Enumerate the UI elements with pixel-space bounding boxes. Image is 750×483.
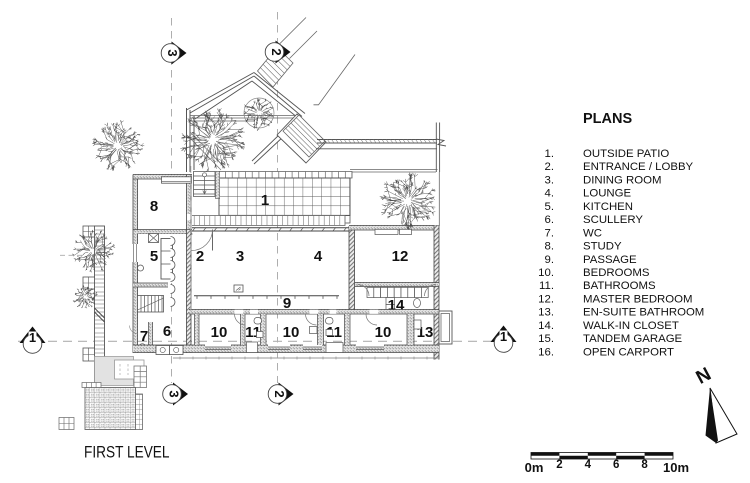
svg-text:PLANS: PLANS (583, 111, 632, 127)
svg-text:STUDY: STUDY (583, 241, 622, 253)
svg-text:OPEN CARPORT: OPEN CARPORT (583, 346, 674, 358)
svg-text:2: 2 (196, 248, 204, 265)
svg-text:1.: 1. (545, 148, 555, 160)
svg-text:10: 10 (283, 324, 300, 341)
svg-text:7: 7 (140, 328, 148, 345)
svg-text:6: 6 (163, 323, 171, 340)
svg-text:FIRST LEVEL: FIRST LEVEL (84, 443, 170, 462)
svg-text:12.: 12. (538, 293, 554, 305)
svg-text:MASTER BEDROOM: MASTER BEDROOM (583, 293, 693, 305)
svg-text:10m: 10m (663, 460, 689, 475)
svg-text:OUTSIDE PATIO: OUTSIDE PATIO (583, 148, 669, 160)
svg-text:1: 1 (500, 329, 507, 344)
svg-text:11.: 11. (539, 280, 554, 292)
svg-text:10: 10 (211, 324, 228, 341)
svg-text:4: 4 (585, 459, 592, 471)
svg-text:1: 1 (29, 330, 36, 345)
svg-text:EN-SUITE BATHROOM: EN-SUITE BATHROOM (583, 307, 704, 319)
svg-text:4.: 4. (545, 188, 555, 200)
svg-text:BEDROOMS: BEDROOMS (583, 267, 650, 279)
svg-text:4: 4 (314, 248, 323, 265)
svg-text:6: 6 (613, 459, 619, 471)
svg-text:2.: 2. (545, 161, 555, 173)
svg-text:3: 3 (165, 49, 180, 56)
svg-text:DINING ROOM: DINING ROOM (583, 174, 661, 186)
svg-text:7.: 7. (545, 227, 555, 239)
svg-text:ENTRANCE / LOBBY: ENTRANCE / LOBBY (583, 161, 694, 173)
svg-text:TANDEM GARAGE: TANDEM GARAGE (583, 333, 683, 345)
svg-text:3: 3 (236, 248, 244, 265)
svg-text:8: 8 (150, 198, 158, 215)
svg-text:2: 2 (556, 459, 562, 471)
svg-text:10.: 10. (538, 267, 554, 279)
svg-text:16.: 16. (538, 346, 554, 358)
svg-text:WC: WC (583, 227, 602, 239)
svg-text:0m: 0m (525, 460, 544, 475)
svg-text:1: 1 (261, 192, 269, 209)
svg-text:15.: 15. (538, 333, 554, 345)
svg-text:KITCHEN: KITCHEN (583, 201, 633, 213)
svg-text:5.: 5. (545, 201, 555, 213)
svg-text:6.: 6. (545, 214, 555, 226)
svg-text:12: 12 (392, 248, 409, 265)
svg-text:PASSAGE: PASSAGE (583, 254, 637, 266)
svg-text:13.: 13. (538, 307, 554, 319)
svg-text:3: 3 (167, 390, 182, 397)
svg-text:BATHROOMS: BATHROOMS (583, 280, 656, 292)
svg-text:9.: 9. (545, 254, 555, 266)
svg-text:LOUNGE: LOUNGE (583, 188, 632, 200)
svg-text:8: 8 (641, 459, 648, 471)
svg-text:10: 10 (375, 324, 392, 341)
svg-text:SCULLERY: SCULLERY (583, 214, 643, 226)
svg-text:2: 2 (272, 390, 287, 397)
svg-text:WALK-IN CLOSET: WALK-IN CLOSET (583, 320, 679, 332)
svg-text:2: 2 (269, 48, 284, 55)
svg-text:3.: 3. (545, 174, 555, 186)
svg-text:5: 5 (150, 248, 158, 265)
svg-text:14.: 14. (538, 320, 554, 332)
svg-text:8.: 8. (545, 241, 555, 253)
